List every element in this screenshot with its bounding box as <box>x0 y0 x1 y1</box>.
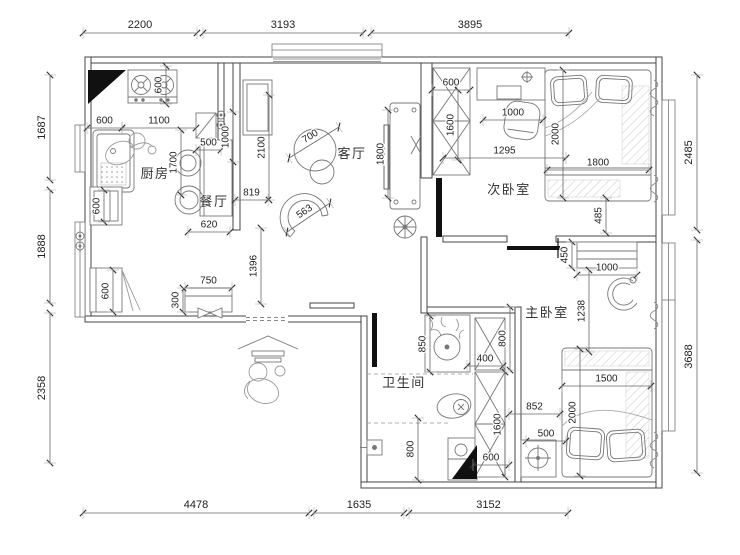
dimension-700: 700 <box>286 122 342 163</box>
floor-plan: 2200319338951687188823582485368844781635… <box>0 0 740 555</box>
dim-label: 450 <box>560 246 571 263</box>
dimension-2200: 2200 <box>80 19 200 39</box>
wall-entry <box>85 316 367 322</box>
bedroom2-furniture <box>433 68 658 202</box>
dim-label: 4478 <box>184 499 208 511</box>
tv-cabinet-icon <box>384 103 421 209</box>
dimension-450: 450 <box>560 239 578 271</box>
dim-label: 600 <box>92 197 103 214</box>
dim-label: 1295 <box>493 146 516 157</box>
dim-label: 1700 <box>169 151 180 174</box>
dimension-2358: 2358 <box>36 310 56 466</box>
dim-label: 3152 <box>476 499 500 511</box>
dim-label: 2485 <box>683 140 695 164</box>
door-leaf-icon <box>507 246 560 250</box>
dimension-563: 563 <box>284 198 334 237</box>
dim-label: 2000 <box>568 401 579 424</box>
dimension-3895: 3895 <box>368 19 572 39</box>
dimension-1687: 1687 <box>36 72 56 183</box>
gas-stove-icon <box>128 70 177 103</box>
dim-label: 3688 <box>683 344 695 368</box>
dim-label: 400 <box>477 354 494 365</box>
dim-label: 1888 <box>36 234 48 258</box>
wall-shelf <box>310 303 354 308</box>
dim-label: 1600 <box>446 113 457 136</box>
wall-bottom <box>361 482 662 488</box>
dim-label: 500 <box>200 138 217 149</box>
dim-label: 300 <box>171 291 182 308</box>
dimension-1396: 1396 <box>249 225 267 307</box>
dim-label: 1238 <box>577 299 588 322</box>
dim-label: 1800 <box>376 142 387 165</box>
wall-living-hall <box>421 63 432 178</box>
dim-label: 1000 <box>596 263 619 274</box>
dim-label: 2100 <box>257 136 268 159</box>
dim-label: 1000 <box>502 108 525 119</box>
dimension-4478: 4478 <box>80 499 312 519</box>
dim-label: 600 <box>101 282 112 299</box>
wall-bedroom2-hall-a <box>443 236 507 242</box>
toilet-icon <box>435 391 473 421</box>
living-furniture <box>238 80 421 408</box>
dim-label: 3193 <box>271 19 295 31</box>
dim-label: 2000 <box>551 122 562 145</box>
ceiling-fan-icon <box>394 216 416 238</box>
washbasin-icon <box>425 315 470 372</box>
wall-living-hall-lower <box>421 237 427 313</box>
dim-label: 2200 <box>128 19 152 31</box>
dim-label: 800 <box>498 330 509 347</box>
dimension-3688: 3688 <box>683 237 703 476</box>
dim-label: 819 <box>243 188 260 199</box>
dim-label: 1635 <box>347 499 371 511</box>
dim-label: 600 <box>96 116 113 127</box>
dimension-1000: 1000 <box>480 108 546 126</box>
dim-label: 485 <box>594 207 605 224</box>
dimension-800: 800 <box>406 415 424 483</box>
window-icon <box>272 44 382 57</box>
bench-icon <box>185 288 232 318</box>
dimension-1635: 1635 <box>311 499 407 519</box>
dim-label: 1600 <box>493 413 504 436</box>
dim-label: 3895 <box>458 19 482 31</box>
dim-label: 600 <box>483 453 500 464</box>
wall-step <box>361 316 367 488</box>
dimension-3152: 3152 <box>406 499 571 519</box>
door-leaf-icon <box>372 313 377 367</box>
dim-label: 600 <box>154 76 165 93</box>
wall-bathroom-top <box>427 307 515 313</box>
armchair-icon <box>608 277 637 310</box>
dim-label: 563 <box>295 202 315 221</box>
dim-label: 800 <box>406 440 417 457</box>
dimension-1888: 1888 <box>36 187 56 306</box>
dimension-852: 852 <box>506 402 563 420</box>
person-icon <box>244 363 285 408</box>
desk-icon <box>477 68 545 100</box>
dim-label: 2358 <box>36 376 48 400</box>
dim-label: 750 <box>200 276 217 287</box>
dim-label: 500 <box>538 429 555 440</box>
cabinet-icon <box>243 80 272 135</box>
dimension-1238: 1238 <box>577 267 595 355</box>
dim-label: 1396 <box>249 254 260 277</box>
dim-label: 700 <box>300 127 320 145</box>
wall-right <box>656 57 662 488</box>
wall-dining-living <box>233 63 240 230</box>
dim-label: 1687 <box>36 115 48 139</box>
dim-label: 1800 <box>587 158 610 169</box>
desk-chair-icon <box>503 100 542 141</box>
dimension-620: 620 <box>185 220 233 238</box>
dim-label: 620 <box>201 220 218 231</box>
entry-canopy-icon <box>238 336 298 362</box>
dim-label: 1100 <box>148 116 170 127</box>
dim-label: 852 <box>526 402 543 413</box>
floor-plan-drawing: 2200319338951687188823582485368844781635… <box>0 0 740 555</box>
wall-master-left <box>515 307 521 482</box>
dimension-2485: 2485 <box>683 72 703 233</box>
corner-triangle-icon <box>88 70 126 104</box>
dim-label: 1000 <box>221 125 232 148</box>
door-leaf-icon <box>436 178 442 237</box>
dim-label: 600 <box>443 78 460 89</box>
dimension-3193: 3193 <box>200 19 366 39</box>
dimension-1700: 1700 <box>169 127 187 198</box>
dim-label: 850 <box>418 335 429 352</box>
dim-label: 1500 <box>595 374 618 385</box>
entry-door-opening <box>246 316 288 323</box>
dining-table-icon <box>200 140 232 216</box>
